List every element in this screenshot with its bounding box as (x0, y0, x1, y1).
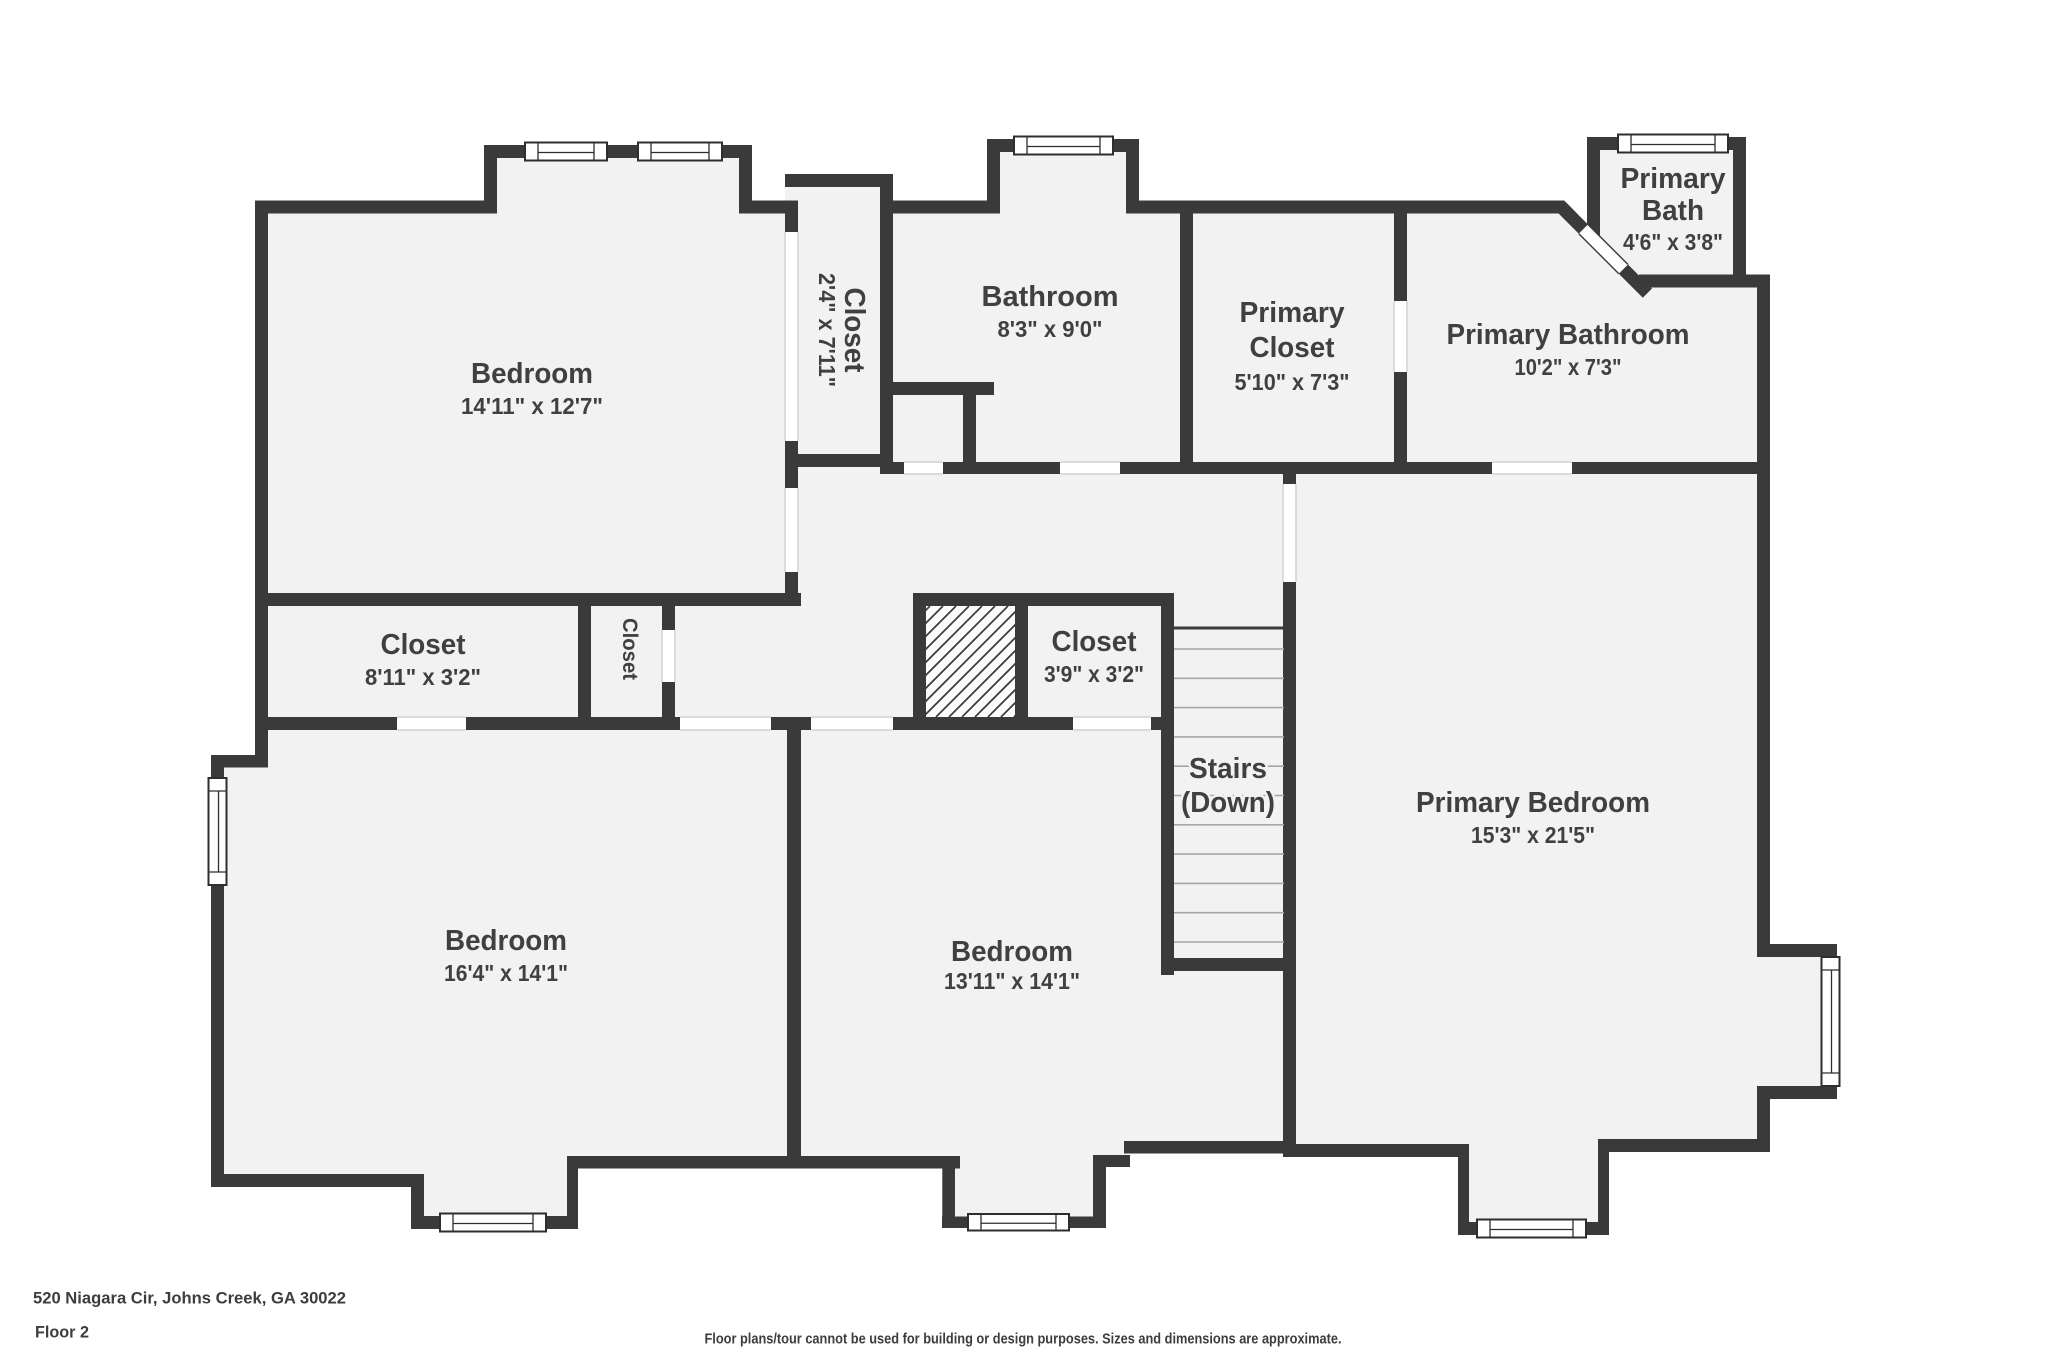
svg-text:Closet: Closet (838, 288, 870, 373)
svg-text:Bedroom: Bedroom (445, 925, 567, 957)
svg-text:Bath: Bath (1642, 195, 1704, 227)
svg-text:14'11" x 12'7": 14'11" x 12'7" (461, 393, 603, 419)
svg-text:10'2" x 7'3": 10'2" x 7'3" (1515, 354, 1622, 380)
svg-text:8'11" x 3'2": 8'11" x 3'2" (365, 664, 481, 690)
svg-text:Bedroom: Bedroom (471, 358, 593, 390)
svg-text:16'4" x 14'1": 16'4" x 14'1" (444, 960, 568, 986)
svg-text:Closet: Closet (618, 618, 641, 680)
svg-text:Floor 2: Floor 2 (35, 1323, 89, 1342)
svg-text:Primary Bedroom: Primary Bedroom (1416, 787, 1650, 819)
svg-text:2'4" x 7'11": 2'4" x 7'11" (814, 273, 840, 387)
svg-text:8'3" x 9'0": 8'3" x 9'0" (998, 316, 1103, 342)
svg-text:Stairs: Stairs (1189, 753, 1267, 785)
svg-text:5'10" x 7'3": 5'10" x 7'3" (1235, 369, 1350, 395)
svg-text:3'9" x 3'2": 3'9" x 3'2" (1044, 661, 1144, 687)
svg-text:Closet: Closet (1052, 626, 1137, 658)
svg-text:Primary: Primary (1621, 163, 1726, 195)
svg-text:Primary: Primary (1240, 297, 1345, 329)
svg-text:4'6" x 3'8": 4'6" x 3'8" (1623, 229, 1723, 255)
svg-text:Primary Bathroom: Primary Bathroom (1447, 319, 1690, 351)
svg-text:520 Niagara Cir, Johns Creek,: 520 Niagara Cir, Johns Creek, GA 30022 (33, 1289, 346, 1308)
svg-text:Floor plans/tour cannot be use: Floor plans/tour cannot be used for buil… (705, 1332, 1342, 1348)
svg-text:13'11" x 14'1": 13'11" x 14'1" (944, 968, 1080, 994)
svg-text:Bathroom: Bathroom (982, 281, 1119, 313)
svg-text:Bedroom: Bedroom (951, 936, 1073, 968)
svg-text:Closet: Closet (1250, 332, 1335, 364)
svg-text:(Down): (Down) (1181, 787, 1275, 819)
svg-text:15'3" x 21'5": 15'3" x 21'5" (1471, 822, 1595, 848)
svg-text:Closet: Closet (381, 629, 466, 661)
